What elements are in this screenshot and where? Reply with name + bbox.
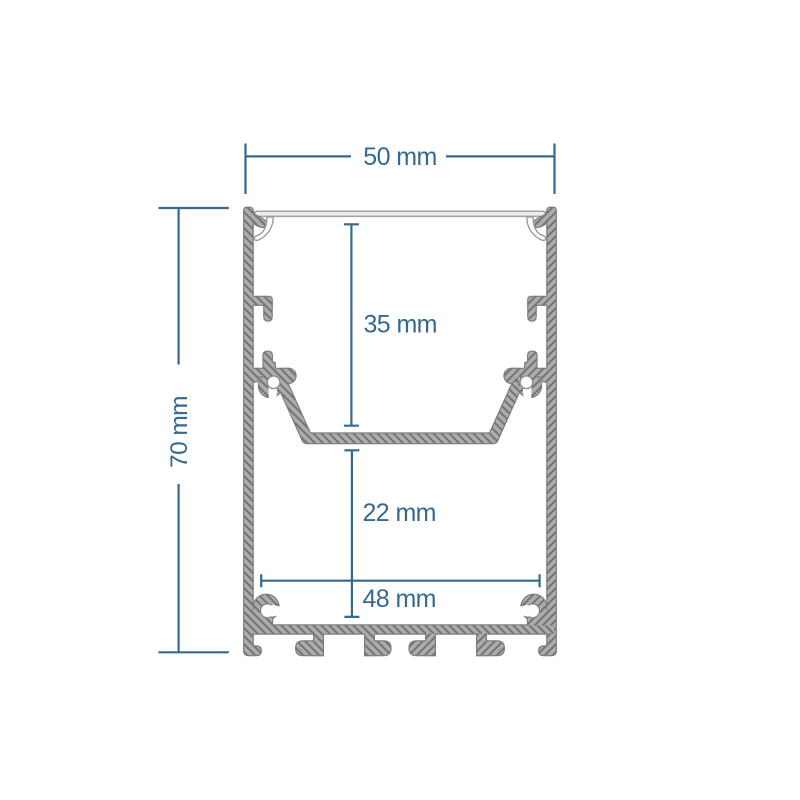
svg-text:22 mm: 22 mm	[363, 499, 436, 527]
svg-text:35 mm: 35 mm	[364, 311, 437, 339]
svg-text:48 mm: 48 mm	[363, 585, 436, 613]
svg-text:50 mm: 50 mm	[363, 143, 436, 171]
svg-text:70 mm: 70 mm	[166, 396, 193, 468]
